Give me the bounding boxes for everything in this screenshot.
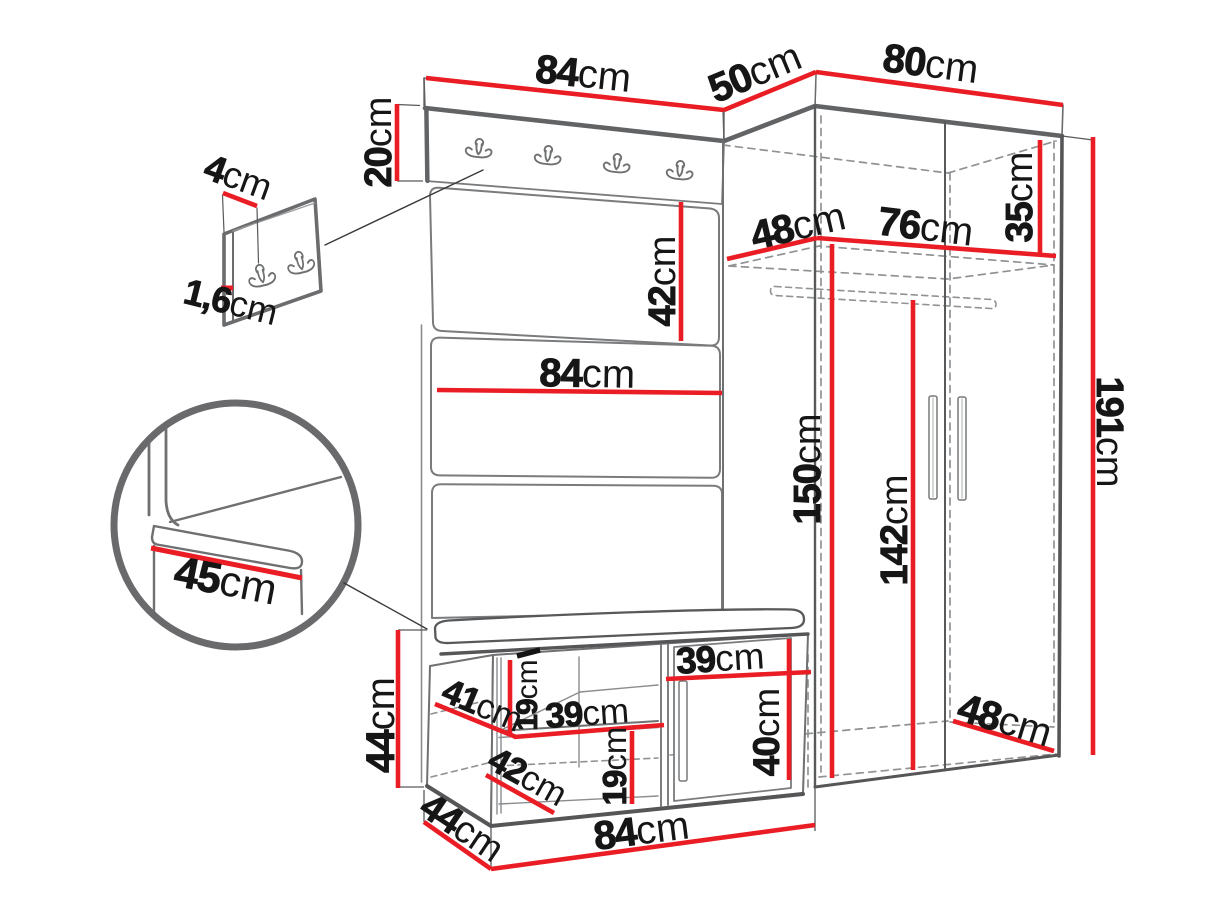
svg-text:84cm: 84cm — [539, 351, 636, 397]
svg-text:150cm: 150cm — [787, 413, 829, 524]
svg-text:35cm: 35cm — [999, 152, 1041, 243]
svg-text:39cm: 39cm — [675, 635, 766, 681]
svg-text:40cm: 40cm — [746, 688, 787, 776]
svg-text:44cm: 44cm — [359, 677, 403, 773]
svg-text:42cm: 42cm — [642, 236, 684, 327]
svg-text:19cm: 19cm — [596, 727, 633, 806]
svg-text:142cm: 142cm — [874, 474, 916, 585]
svg-text:191cm: 191cm — [1088, 376, 1130, 487]
svg-text:20cm: 20cm — [358, 97, 400, 188]
